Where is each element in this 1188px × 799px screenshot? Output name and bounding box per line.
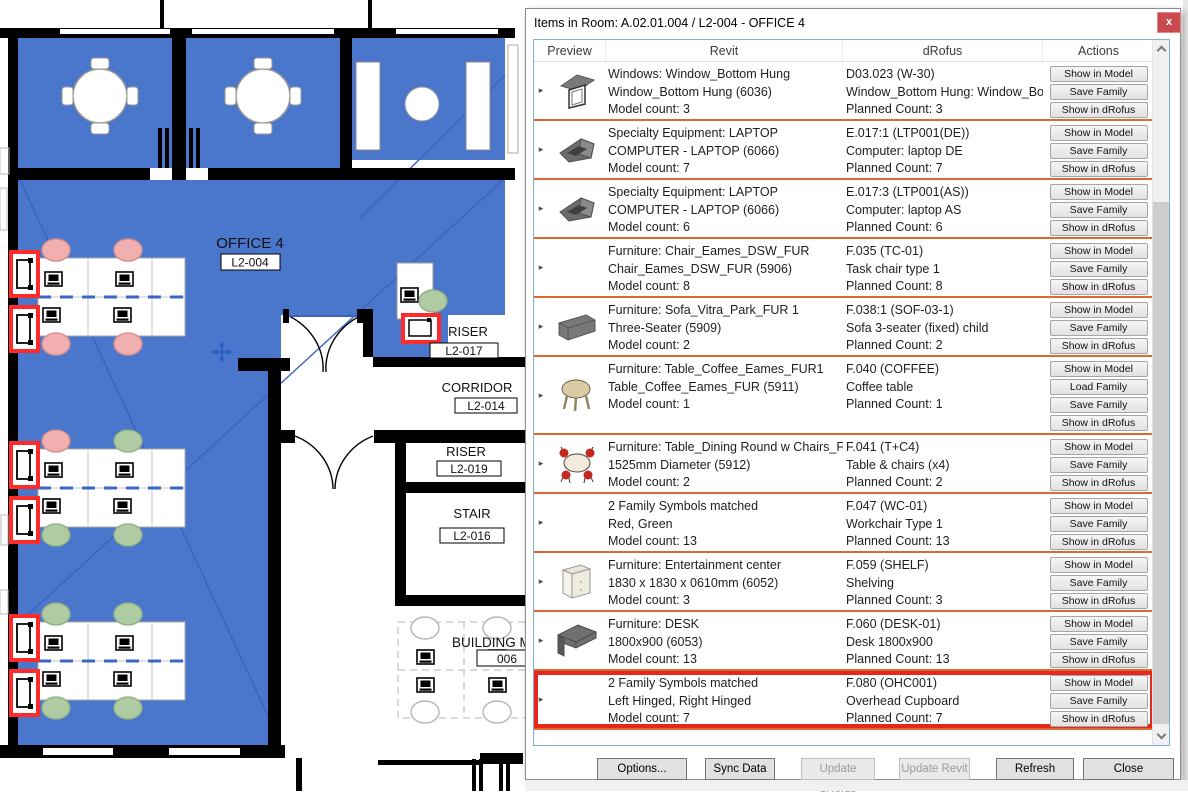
background-strip (1183, 0, 1188, 791)
highlighted-cupboard (11, 307, 38, 351)
actions-cell: Show in ModelSave FamilyShow in dRofus (1043, 121, 1154, 178)
actions-cell: Show in ModelSave FamilyShow in dRofus (1043, 239, 1154, 296)
shelf-preview-icon (548, 553, 606, 610)
show-in-drofus-button[interactable]: Show in dRofus (1050, 102, 1148, 118)
save-family-button[interactable]: Save Family (1050, 457, 1148, 473)
revit-text-line: 2 Family Symbols matched (608, 675, 843, 693)
revit-text-line: Specialty Equipment: LAPTOP (608, 125, 843, 143)
show-in-drofus-button[interactable]: Show in dRofus (1050, 652, 1148, 668)
revit-cell: 2 Family Symbols matchedRed, GreenModel … (606, 494, 843, 551)
item-rows: ▸Windows: Window_Bottom HungWindow_Botto… (534, 62, 1154, 745)
actions-cell: Show in ModelLoad FamilySave FamilyShow … (1043, 357, 1154, 433)
room-label-building-mgmt: BUILDING M (452, 635, 531, 650)
options-button[interactable]: Options... (597, 758, 687, 780)
update-drofus-button: Update dRofus (801, 758, 875, 780)
drofus-text-line: F.041 (T+C4) (846, 439, 1043, 457)
revit-cell: 2 Family Symbols matchedLeft Hinged, Rig… (606, 671, 843, 728)
preview-empty (548, 239, 606, 296)
drofus-text-line: Computer: laptop DE (846, 143, 1043, 161)
revit-text-line: Model count: 7 (608, 160, 843, 178)
drofus-cell: F.080 (OHC001)Overhead CupboardPlanned C… (843, 671, 1043, 728)
highlighted-cupboard (11, 252, 38, 296)
show-in-model-button[interactable]: Show in Model (1050, 243, 1148, 259)
revit-text-line: Model count: 3 (608, 101, 843, 119)
drofus-text-line: Planned Count: 2 (846, 337, 1043, 355)
drofus-text-line: F.047 (WC-01) (846, 498, 1043, 516)
room-tag-corridor: L2-014 (467, 399, 505, 413)
row-expander-icon[interactable]: ▸ (534, 121, 548, 178)
drofus-text-line: Coffee table (846, 379, 1043, 397)
sync-data-button[interactable]: Sync Data (705, 758, 775, 780)
drofus-cell: F.059 (SHELF)ShelvingPlanned Count: 3 (843, 553, 1043, 610)
table-row: ▸Furniture: Table_Coffee_Eames_FUR1Table… (534, 357, 1154, 435)
revit-text-line: Model count: 13 (608, 533, 843, 551)
revit-text-line: Furniture: Sofa_Vitra_Park_FUR 1 (608, 302, 843, 320)
drofus-text-line: E.017:3 (LTP001(AS)) (846, 184, 1043, 202)
actions-cell: Show in ModelSave FamilyShow in dRofus (1043, 435, 1154, 492)
actions-cell: Show in ModelSave FamilyShow in dRofus (1043, 62, 1154, 119)
show-in-model-button[interactable]: Show in Model (1050, 302, 1148, 318)
revit-text-line: 1525mm Diameter (5912) (608, 457, 843, 475)
double-door-corridor (295, 436, 373, 489)
show-in-drofus-button[interactable]: Show in dRofus (1050, 475, 1148, 491)
table-row: ▸Furniture: Sofa_Vitra_Park_FUR 1Three-S… (534, 298, 1154, 357)
show-in-model-button[interactable]: Show in Model (1050, 675, 1148, 691)
load-family-button[interactable]: Load Family (1050, 379, 1148, 395)
highlighted-cupboard (11, 671, 38, 715)
drofus-text-line: Planned Count: 6 (846, 219, 1043, 237)
row-expander-icon[interactable]: ▸ (534, 435, 548, 492)
room-tag-riser19: L2-019 (450, 462, 488, 476)
update-revit-button: Update Revit (899, 758, 970, 780)
column-header-preview[interactable]: Preview (534, 40, 606, 61)
table-row: ▸2 Family Symbols matchedLeft Hinged, Ri… (534, 671, 1154, 730)
drofus-cell: E.017:3 (LTP001(AS))Computer: laptop ASP… (843, 180, 1043, 237)
show-in-drofus-button[interactable]: Show in dRofus (1050, 534, 1148, 550)
drofus-text-line: Shelving (846, 575, 1043, 593)
show-in-model-button[interactable]: Show in Model (1050, 439, 1148, 455)
refresh-button[interactable]: Refresh (996, 758, 1074, 780)
revit-text-line: Furniture: Table_Dining Round w Chairs_F… (608, 439, 843, 457)
show-in-drofus-button[interactable]: Show in dRofus (1050, 593, 1148, 609)
save-family-button[interactable]: Save Family (1050, 143, 1148, 159)
dining-preview-icon (548, 435, 606, 492)
coffee-preview-icon (548, 357, 606, 433)
dialog-title: Items in Room: A.02.01.004 / L2-004 - OF… (534, 16, 805, 30)
show-in-drofus-button[interactable]: Show in dRofus (1050, 279, 1148, 295)
room-tag-riser17: L2-017 (445, 344, 483, 358)
revit-text-line: Furniture: DESK (608, 616, 843, 634)
save-family-button[interactable]: Save Family (1050, 202, 1148, 218)
drofus-cell: F.038:1 (SOF-03-1)Sofa 3-seater (fixed) … (843, 298, 1043, 355)
row-expander-icon[interactable]: ▸ (534, 494, 548, 551)
revit-text-line: Model count: 7 (608, 710, 843, 728)
drofus-text-line: F.060 (DESK-01) (846, 616, 1043, 634)
drofus-text-line: Planned Count: 7 (846, 710, 1043, 728)
drofus-cell: D03.023 (W-30)Window_Bottom Hung: Window… (843, 62, 1043, 119)
desk-preview-icon (548, 612, 606, 669)
dialog-titlebar[interactable]: Items in Room: A.02.01.004 / L2-004 - OF… (526, 9, 1180, 38)
revit-text-line: Model count: 13 (608, 651, 843, 669)
column-header-revit[interactable]: Revit (606, 40, 843, 61)
save-family-button[interactable]: Save Family (1050, 516, 1148, 532)
vertical-scrollbar[interactable] (1152, 40, 1169, 745)
drofus-text-line: E.017:1 (LTP001(DE)) (846, 125, 1043, 143)
scroll-up-icon[interactable] (1153, 40, 1169, 57)
room-label-riser17: RISER (448, 324, 488, 339)
revit-text-line: Model count: 8 (608, 278, 843, 296)
drofus-text-line: Planned Count: 1 (846, 396, 1043, 414)
close-button[interactable]: x (1157, 12, 1181, 33)
show-in-model-button[interactable]: Show in Model (1050, 616, 1148, 632)
window-preview-icon (548, 62, 606, 119)
table-header: Preview Revit dRofus Actions (534, 40, 1154, 62)
save-family-button[interactable]: Save Family (1050, 693, 1148, 709)
drofus-text-line: Task chair type 1 (846, 261, 1043, 279)
show-in-model-button[interactable]: Show in Model (1050, 66, 1148, 82)
laptop-preview-icon (548, 180, 606, 237)
show-in-drofus-button[interactable]: Show in dRofus (1050, 415, 1148, 431)
show-in-model-button[interactable]: Show in Model (1050, 361, 1148, 377)
drofus-text-line: Planned Count: 13 (846, 651, 1043, 669)
row-expander-icon[interactable]: ▸ (534, 180, 548, 237)
save-family-button[interactable]: Save Family (1050, 575, 1148, 591)
drofus-text-line: Planned Count: 3 (846, 592, 1043, 610)
revit-text-line: Model count: 2 (608, 474, 843, 492)
revit-cell: Windows: Window_Bottom HungWindow_Bottom… (606, 62, 843, 119)
background-strip (525, 780, 1188, 791)
table-row: ▸Furniture: Entertainment center1830 x 1… (534, 553, 1154, 612)
drofus-text-line: Planned Count: 7 (846, 160, 1043, 178)
building-mgmt-desks (398, 617, 530, 723)
revit-text-line: Furniture: Entertainment center (608, 557, 843, 575)
revit-text-line: Furniture: Chair_Eames_DSW_FUR (608, 243, 843, 261)
save-family-button[interactable]: Save Family (1050, 84, 1148, 100)
close-dialog-button[interactable]: Close (1083, 758, 1174, 780)
drofus-text-line: Table & chairs (x4) (846, 457, 1043, 475)
show-in-model-button[interactable]: Show in Model (1050, 184, 1148, 200)
drofus-text-line: Workchair Type 1 (846, 516, 1043, 534)
room-tag-stair: L2-016 (453, 529, 491, 543)
drofus-text-line: Computer: laptop AS (846, 202, 1043, 220)
save-family-button[interactable]: Save Family (1050, 634, 1148, 650)
actions-cell: Show in ModelSave FamilyShow in dRofus (1043, 180, 1154, 237)
revit-text-line: Table_Coffee_Eames_FUR (5911) (608, 379, 843, 397)
drofus-text-line: D03.023 (W-30) (846, 66, 1043, 84)
revit-cell: Furniture: Table_Dining Round w Chairs_F… (606, 435, 843, 492)
drofus-text-line: F.040 (COFFEE) (846, 361, 1043, 379)
drofus-text-line: Desk 1800x900 (846, 634, 1043, 652)
table-row: ▸Specialty Equipment: LAPTOPCOMPUTER - L… (534, 121, 1154, 180)
revit-text-line: COMPUTER - LAPTOP (6066) (608, 202, 843, 220)
column-header-drofus[interactable]: dRofus (843, 40, 1043, 61)
save-family-button[interactable]: Save Family (1050, 397, 1148, 413)
revit-text-line: 1800x900 (6053) (608, 634, 843, 652)
revit-text-line: Specialty Equipment: LAPTOP (608, 184, 843, 202)
sofa-preview-icon (548, 298, 606, 355)
revit-cell: Furniture: Chair_Eames_DSW_FURChair_Eame… (606, 239, 843, 296)
drofus-cell: F.035 (TC-01)Task chair type 1Planned Co… (843, 239, 1043, 296)
drofus-text-line: Planned Count: 2 (846, 474, 1043, 492)
row-expander-icon[interactable]: ▸ (534, 612, 548, 669)
revit-text-line: Chair_Eames_DSW_FUR (5906) (608, 261, 843, 279)
revit-text-line: Model count: 1 (608, 396, 843, 414)
items-in-room-dialog: Items in Room: A.02.01.004 / L2-004 - OF… (525, 8, 1181, 780)
show-in-drofus-button[interactable]: Show in dRofus (1050, 161, 1148, 177)
actions-cell: Show in ModelSave FamilyShow in dRofus (1043, 494, 1154, 551)
save-family-button[interactable]: Save Family (1050, 320, 1148, 336)
revit-text-line: Red, Green (608, 516, 843, 534)
drofus-text-line: Planned Count: 3 (846, 101, 1043, 119)
revit-cell: Furniture: Sofa_Vitra_Park_FUR 1Three-Se… (606, 298, 843, 355)
room-tag-building-mgmt: 006 (497, 652, 517, 666)
highlighted-cupboard (11, 616, 38, 660)
scrollbar-thumb[interactable] (1153, 202, 1169, 724)
revit-text-line: Model count: 6 (608, 219, 843, 237)
table-row: ▸Furniture: Table_Dining Round w Chairs_… (534, 435, 1154, 494)
items-listbox: Preview Revit dRofus Actions ▸Windows: W… (533, 39, 1170, 746)
drofus-cell: F.041 (T+C4)Table & chairs (x4)Planned C… (843, 435, 1043, 492)
actions-cell: Show in ModelSave FamilyShow in dRofus (1043, 298, 1154, 355)
highlighted-cupboard (11, 443, 38, 487)
room-label-riser19: RISER (446, 444, 486, 459)
drofus-text-line: F.059 (SHELF) (846, 557, 1043, 575)
drofus-text-line: Sofa 3-seater (fixed) child (846, 320, 1043, 338)
revit-text-line: Left Hinged, Right Hinged (608, 693, 843, 711)
drofus-text-line: F.080 (OHC001) (846, 675, 1043, 693)
scroll-down-icon[interactable] (1153, 728, 1169, 745)
revit-text-line: Model count: 3 (608, 592, 843, 610)
table-row: ▸2 Family Symbols matchedRed, GreenModel… (534, 494, 1154, 553)
row-expander-icon[interactable]: ▸ (534, 239, 548, 296)
table-row: ▸Windows: Window_Bottom HungWindow_Botto… (534, 62, 1154, 121)
drofus-cell: F.047 (WC-01)Workchair Type 1Planned Cou… (843, 494, 1043, 551)
drofus-cell: F.040 (COFFEE)Coffee tablePlanned Count:… (843, 357, 1043, 433)
save-family-button[interactable]: Save Family (1050, 261, 1148, 277)
window-strip (508, 45, 518, 153)
revit-text-line: Furniture: Table_Coffee_Eames_FUR1 (608, 361, 843, 379)
revit-cell: Specialty Equipment: LAPTOPCOMPUTER - LA… (606, 121, 843, 178)
actions-cell: Show in ModelSave FamilyShow in dRofus (1043, 612, 1154, 669)
laptop-preview-icon (548, 121, 606, 178)
room-label-office4: OFFICE 4 (216, 235, 284, 252)
revit-text-line: COMPUTER - LAPTOP (6066) (608, 143, 843, 161)
revit-text-line: 1830 x 1830 x 0610mm (6052) (608, 575, 843, 593)
show-in-drofus-button[interactable]: Show in dRofus (1050, 220, 1148, 236)
revit-text-line: 2 Family Symbols matched (608, 498, 843, 516)
preview-empty (548, 494, 606, 551)
room-label-stair: STAIR (453, 506, 490, 521)
table-row: ▸Specialty Equipment: LAPTOPCOMPUTER - L… (534, 180, 1154, 239)
revit-text-line: Three-Seater (5909) (608, 320, 843, 338)
revit-cell: Furniture: Table_Coffee_Eames_FUR1Table_… (606, 357, 843, 433)
actions-cell: Show in ModelSave FamilyShow in dRofus (1043, 671, 1154, 728)
show-in-drofus-button[interactable]: Show in dRofus (1050, 338, 1148, 354)
revit-text-line: Window_Bottom Hung (6036) (608, 84, 843, 102)
highlighted-cupboard (11, 498, 38, 542)
column-header-actions[interactable]: Actions (1043, 40, 1154, 61)
drofus-cell: E.017:1 (LTP001(DE))Computer: laptop DEP… (843, 121, 1043, 178)
drofus-text-line: F.038:1 (SOF-03-1) (846, 302, 1043, 320)
row-expander-icon[interactable]: ▸ (534, 62, 548, 119)
drofus-text-line: Window_Bottom Hung: Window_Bo (846, 84, 1043, 102)
preview-empty (548, 671, 606, 728)
row-expander-icon[interactable]: ▸ (534, 553, 548, 610)
row-expander-icon[interactable]: ▸ (534, 671, 548, 728)
room-label-corridor: CORRIDOR (442, 380, 513, 395)
row-expander-icon[interactable]: ▸ (534, 357, 548, 433)
show-in-model-button[interactable]: Show in Model (1050, 557, 1148, 573)
row-expander-icon[interactable]: ▸ (534, 298, 548, 355)
show-in-drofus-button[interactable]: Show in dRofus (1050, 711, 1148, 727)
drofus-text-line: Planned Count: 8 (846, 278, 1043, 296)
room-tag-office4: L2-004 (231, 256, 269, 270)
actions-cell: Show in ModelSave FamilyShow in dRofus (1043, 553, 1154, 610)
revit-text-line: Model count: 2 (608, 337, 843, 355)
margin-furniture-outlines (0, 148, 9, 614)
revit-text-line: Windows: Window_Bottom Hung (608, 66, 843, 84)
revit-cell: Specialty Equipment: LAPTOPCOMPUTER - LA… (606, 180, 843, 237)
drofus-text-line: Planned Count: 13 (846, 533, 1043, 551)
revit-cell: Furniture: Entertainment center1830 x 18… (606, 553, 843, 610)
show-in-model-button[interactable]: Show in Model (1050, 125, 1148, 141)
drofus-cell: F.060 (DESK-01)Desk 1800x900Planned Coun… (843, 612, 1043, 669)
table-row: ▸Furniture: Chair_Eames_DSW_FURChair_Eam… (534, 239, 1154, 298)
drofus-text-line: Overhead Cupboard (846, 693, 1043, 711)
revit-cell: Furniture: DESK1800x900 (6053)Model coun… (606, 612, 843, 669)
table-row: ▸Furniture: DESK1800x900 (6053)Model cou… (534, 612, 1154, 671)
show-in-model-button[interactable]: Show in Model (1050, 498, 1148, 514)
drofus-text-line: F.035 (TC-01) (846, 243, 1043, 261)
